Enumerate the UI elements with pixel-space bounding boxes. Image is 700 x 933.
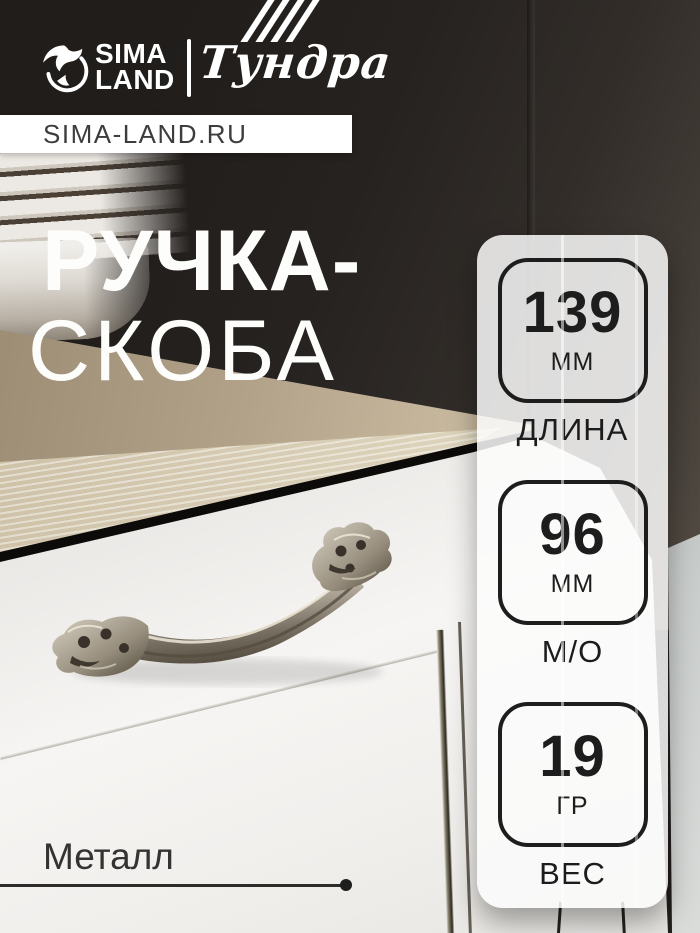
product-banner: SIMA LAND Тундра SIMA-LAND.RU РУЧКА- СКО… [0, 0, 700, 933]
spec-label: М/О [477, 634, 668, 670]
title-line-2: СКОБА [28, 306, 361, 396]
sima-land-wordmark: SIMA LAND [95, 41, 175, 93]
spec-value: 19 [539, 729, 606, 785]
title-line-1: РУЧКА- [28, 216, 361, 306]
spec-unit: ММ [551, 570, 595, 599]
spec-badge: 139 ММ [498, 258, 648, 403]
spec-label: ДЛИНА [477, 412, 668, 448]
spec-item-hole-spacing: 96 ММ М/О [477, 480, 668, 670]
spec-item-length: 139 ММ ДЛИНА [477, 258, 668, 448]
cabinet-handle-image [38, 520, 410, 696]
land-word: LAND [95, 67, 175, 93]
spec-badge: 96 ММ [498, 480, 648, 625]
handle-right-finial [312, 522, 392, 591]
material-underline-dot [340, 879, 352, 891]
panel-reflection-streak [561, 235, 564, 908]
spec-panel: 139 ММ ДЛИНА 96 ММ М/О 19 ГР ВЕС [477, 235, 668, 908]
spec-value: 139 [523, 285, 623, 341]
spec-value: 96 [539, 507, 606, 563]
tundra-wordmark: Тундра [197, 36, 373, 89]
site-url: SIMA-LAND.RU [0, 115, 352, 153]
spec-item-weight: 19 ГР ВЕС [477, 702, 668, 892]
spec-label: ВЕС [477, 856, 668, 892]
material-underline [0, 884, 346, 887]
brand-divider [187, 39, 191, 97]
site-bar: SIMA-LAND.RU [0, 115, 352, 153]
spec-badge: 19 ГР [498, 702, 648, 847]
panel-reflection-streak [635, 235, 638, 908]
spec-unit: ММ [551, 348, 595, 377]
product-title: РУЧКА- СКОБА [28, 216, 361, 396]
sima-land-dolphin-icon [38, 40, 90, 94]
material-label: Металл [43, 836, 174, 878]
